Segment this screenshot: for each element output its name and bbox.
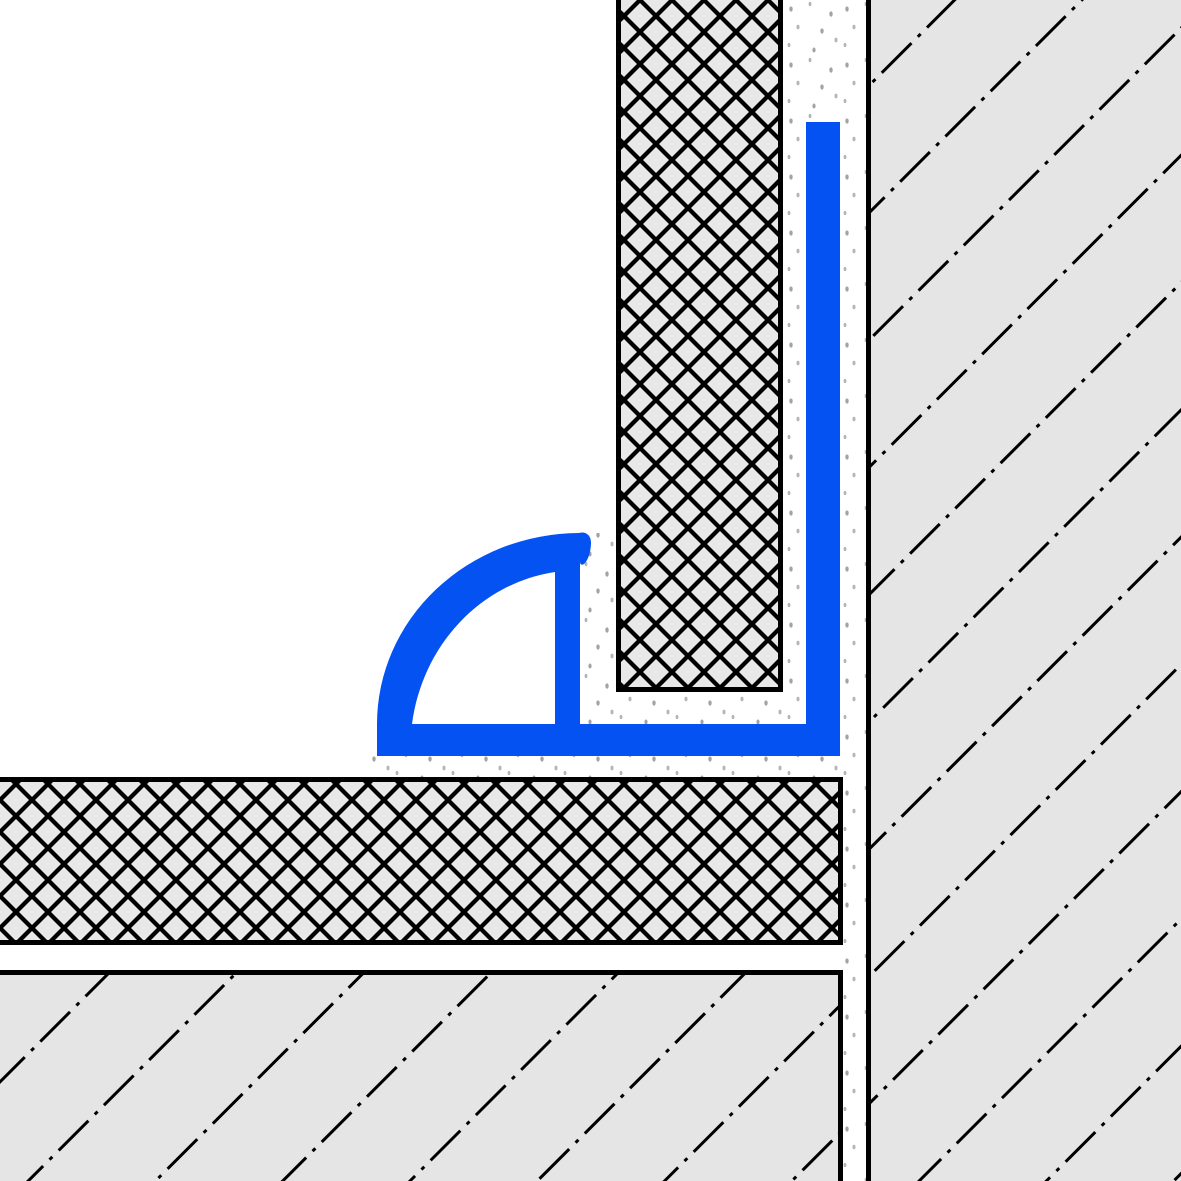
wall-border-left bbox=[866, 0, 871, 1181]
wall-tile-border-right bbox=[778, 0, 783, 692]
wall-tile-hatch bbox=[616, 0, 783, 692]
adhesive-under-wall-tile-edge bbox=[616, 692, 783, 724]
floor-tile-border-top bbox=[0, 777, 843, 782]
floor-substrate-border-right bbox=[838, 970, 843, 1181]
detail-drawing-stage bbox=[0, 0, 1181, 1181]
floor-tile-border-bottom bbox=[0, 940, 843, 945]
floor-substrate-hatch bbox=[0, 970, 843, 1181]
wall-tile-border-bottom bbox=[616, 687, 783, 692]
detail-drawing bbox=[0, 0, 1181, 1181]
wall-hatch bbox=[866, 0, 1181, 1181]
wall-tile-border-left bbox=[616, 0, 621, 692]
adhesive-under-profile-leg bbox=[372, 756, 866, 777]
adhesive-column-lower bbox=[840, 724, 866, 1181]
floor-substrate-border-top bbox=[0, 970, 843, 975]
floor-tile-border-right bbox=[838, 777, 843, 945]
floor-tile-hatch bbox=[0, 777, 843, 945]
